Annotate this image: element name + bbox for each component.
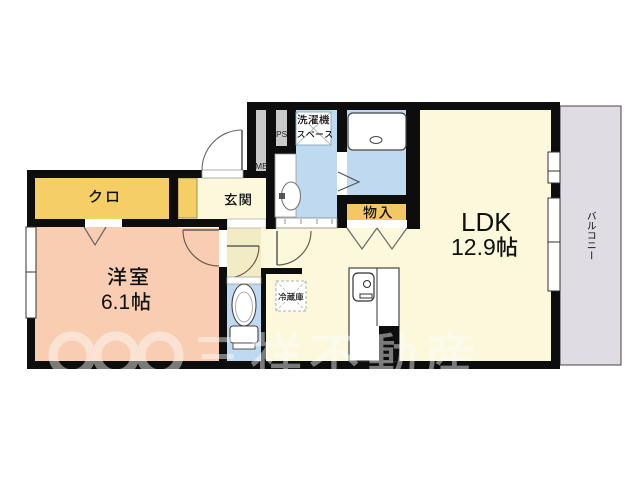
svg-text:PS: PS bbox=[276, 129, 288, 139]
svg-text:MB: MB bbox=[255, 161, 268, 171]
svg-text:12.9: 12.9 bbox=[451, 234, 496, 260]
svg-text:LDK: LDK bbox=[461, 207, 512, 237]
svg-text:6.1: 6.1 bbox=[101, 291, 130, 314]
